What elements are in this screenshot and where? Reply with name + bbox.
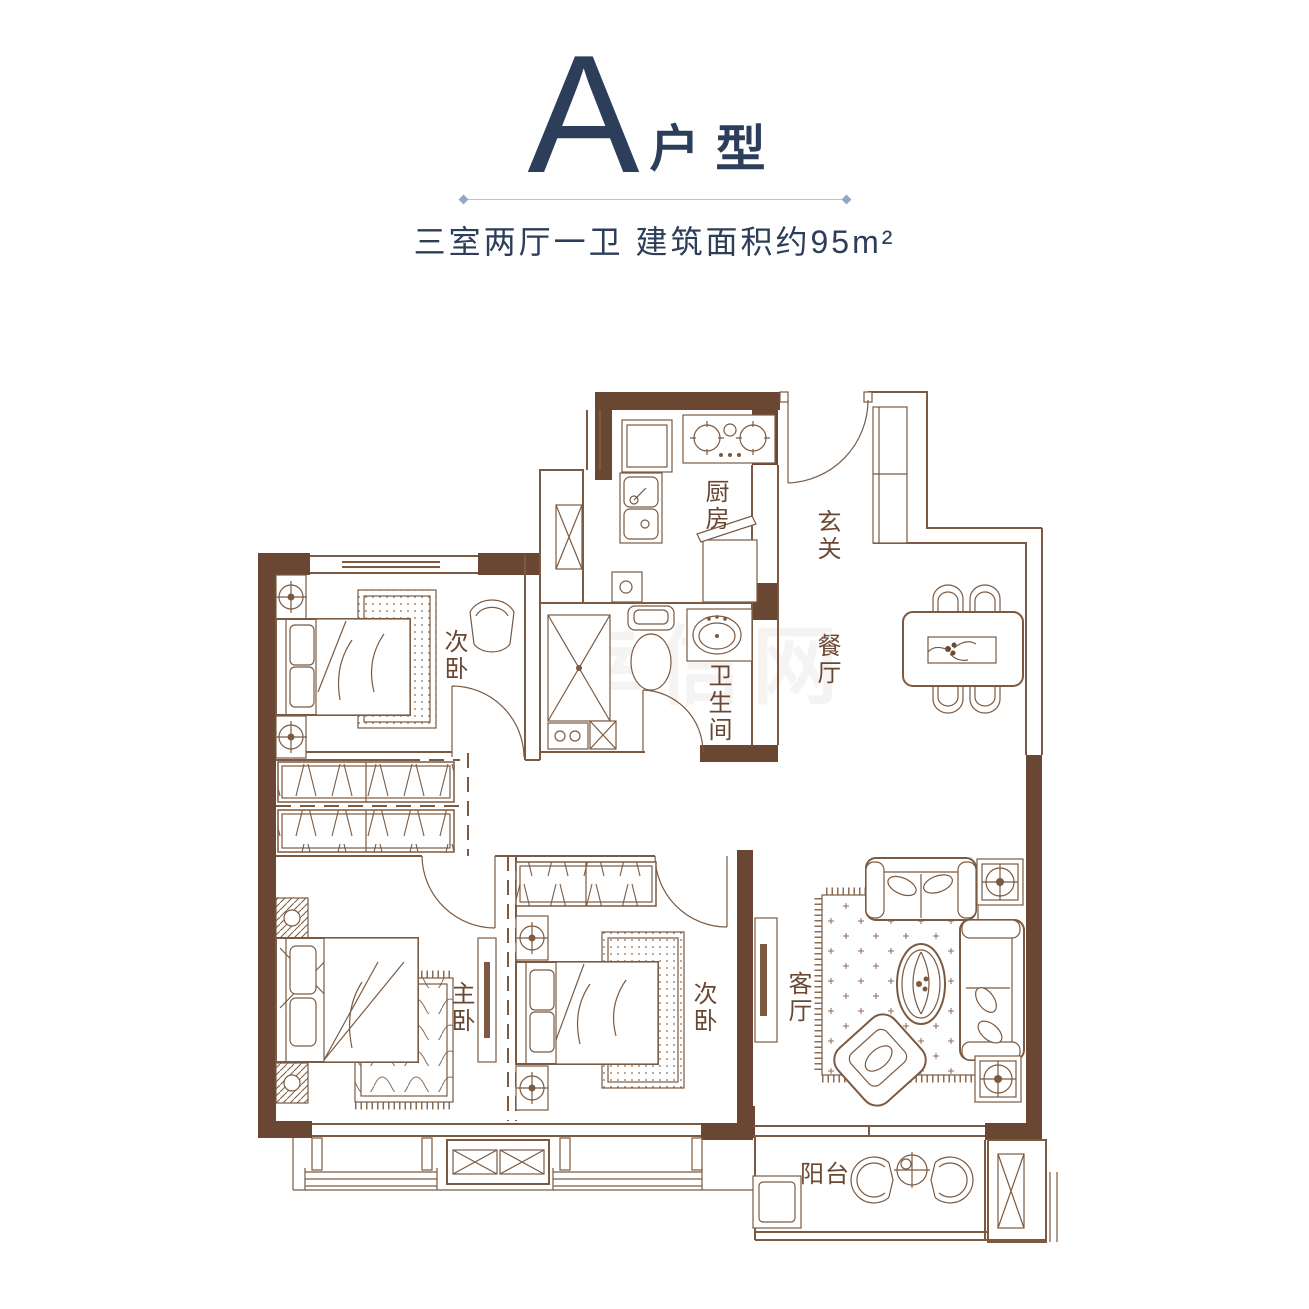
washing-machine xyxy=(548,723,588,749)
floorplan-svg: 幸信网 xyxy=(0,0,1309,1309)
dining-table xyxy=(903,612,1023,686)
room-label-master: 主卧 xyxy=(452,981,477,1035)
room-label-entry: 玄关 xyxy=(818,509,843,563)
sofa-loveseat xyxy=(866,858,976,920)
fridge xyxy=(622,420,672,472)
dining-chair xyxy=(970,687,1000,713)
room-label-kitchen: 厨房 xyxy=(706,479,731,533)
balcony-storage xyxy=(753,1176,801,1228)
room-bedroom-bottom xyxy=(516,862,684,1110)
chair xyxy=(470,600,514,652)
room-label-dining: 餐厅 xyxy=(818,633,843,687)
bed xyxy=(276,619,410,715)
room-kitchen xyxy=(612,415,775,602)
tv-console xyxy=(755,918,777,1042)
dining-chair xyxy=(933,687,963,713)
room-label-balcony: 阳台 xyxy=(800,1161,850,1188)
sofa-main xyxy=(960,920,1024,1060)
master-door-arc xyxy=(422,856,495,928)
side-table xyxy=(977,859,1023,905)
dining-chair xyxy=(970,585,1000,611)
stove xyxy=(683,415,775,463)
room-entry xyxy=(873,407,907,543)
kitchen-sink xyxy=(620,473,662,543)
room-bedroom-top xyxy=(275,575,514,758)
bedroom-bottom-door-arc xyxy=(655,856,727,927)
entry-door-arc xyxy=(788,400,868,483)
room-label-bedroom-top: 次卧 xyxy=(445,629,470,683)
room-label-living: 客厅 xyxy=(789,971,814,1025)
tv-console xyxy=(478,938,496,1062)
bedroom-top-door-arc xyxy=(452,686,524,757)
bed xyxy=(276,938,418,1062)
dining-chair xyxy=(933,585,963,611)
room-balcony xyxy=(753,1152,973,1228)
balcony-chair xyxy=(851,1157,893,1203)
room-dining xyxy=(903,585,1023,713)
side-table xyxy=(975,1056,1021,1102)
shower xyxy=(548,615,610,721)
shoe-cabinet xyxy=(873,407,907,543)
kitchen-cabinet xyxy=(612,572,642,602)
toilet xyxy=(628,606,674,690)
balcony-chair xyxy=(931,1157,973,1203)
room-label-bedroom-bottom: 次卧 xyxy=(694,981,719,1035)
bed xyxy=(516,962,658,1064)
balcony-table xyxy=(894,1152,930,1188)
room-label-bathroom: 卫生间 xyxy=(709,663,734,744)
coffee-table xyxy=(897,944,945,1024)
bathroom-vanity xyxy=(687,609,752,661)
page: { "header": { "plan_letter": "A", "plan_… xyxy=(0,0,1309,1309)
